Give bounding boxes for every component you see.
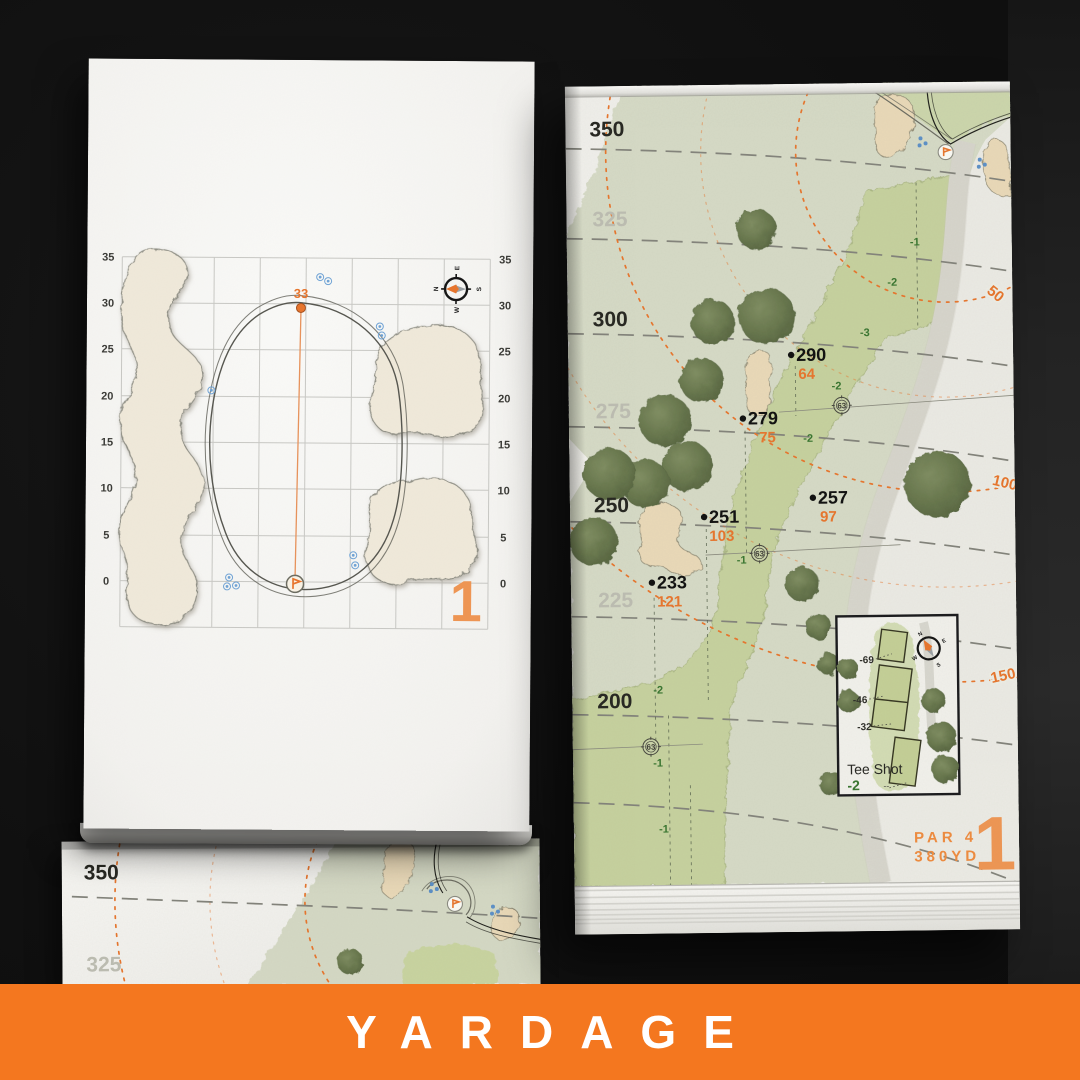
bottom-partial-page: 350 325 xyxy=(61,838,540,987)
banner-title: YARDAGE xyxy=(319,1005,761,1059)
paper-grain xyxy=(83,58,534,831)
yardage-banner: YARDAGE xyxy=(0,984,1080,1080)
yardage-book-mockup: 350 325 xyxy=(0,0,1080,1080)
paper-grain xyxy=(565,81,1020,934)
right-page-hole-map: 350 325 300 275 250 225 200 50 100 150 6… xyxy=(565,81,1020,934)
paper-grain xyxy=(61,838,540,987)
left-page-green-detail: 33 N E S xyxy=(83,58,534,831)
